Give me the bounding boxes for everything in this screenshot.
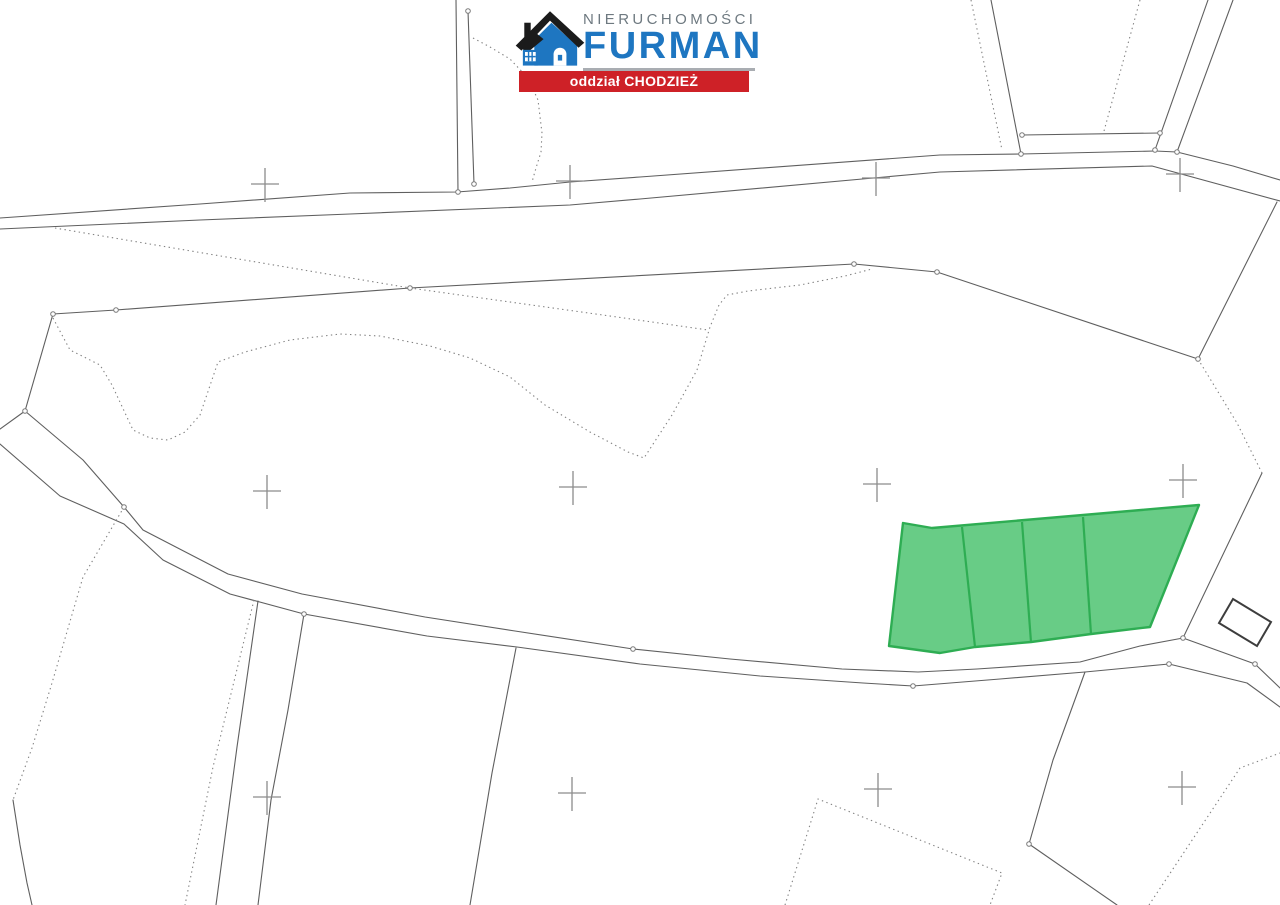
vertex-marker (408, 286, 413, 291)
east-dotted-link (1198, 359, 1262, 473)
vertex-marker (1167, 662, 1172, 667)
brand-text-block: NIERUCHOMOŚCI FURMAN (583, 11, 765, 71)
upward-road-middle-dotted (1104, 0, 1140, 131)
vertex-marker (1153, 148, 1158, 153)
vertex-marker (1020, 133, 1025, 138)
vertex-marker (1158, 131, 1163, 136)
building-outline (1219, 599, 1271, 646)
upward-road-left-edge (991, 0, 1021, 154)
survey-cross (253, 781, 281, 815)
vertex-marker (456, 190, 461, 195)
vertex-marker (23, 409, 28, 414)
cadastral-map-svg (0, 0, 1280, 905)
brand-name-main: FURMAN (583, 27, 765, 65)
branch-banner: oddział CHODZIEŻ (519, 71, 749, 92)
southeast-dotted (1149, 753, 1280, 905)
survey-cross (864, 773, 892, 807)
north-vertical-boundary-1 (456, 0, 458, 192)
road-north-top-line (0, 151, 1280, 218)
survey-cross (1166, 158, 1194, 192)
vertex-marker (1196, 357, 1201, 362)
upward-road-left-dotted (971, 0, 1002, 150)
survey-cross (1168, 771, 1196, 805)
south-boundary-d (1029, 672, 1117, 905)
road-north-bottom-line (0, 166, 1280, 229)
south-v-dotted (785, 799, 1002, 905)
vertex-marker (935, 270, 940, 275)
survey-cross (251, 168, 279, 202)
cadastral-map-page: NIERUCHOMOŚCI FURMAN oddział CHODZIEŻ (0, 0, 1280, 905)
vertex-marker (302, 612, 307, 617)
vertex-marker (472, 182, 477, 187)
vertex-marker (51, 312, 56, 317)
vertex-marker (1027, 842, 1032, 847)
vertex-marker (911, 684, 916, 689)
survey-cross (556, 165, 584, 199)
survey-cross (253, 475, 281, 509)
survey-cross (559, 471, 587, 505)
southwest-steep-dotted (13, 507, 124, 800)
vertex-marker (466, 9, 471, 14)
landuse-wavy-dotted (53, 269, 872, 458)
east-boundary-upper-link (1198, 202, 1277, 359)
highlighted-parcels (889, 505, 1199, 653)
vertex-marker (122, 505, 127, 510)
survey-cross (558, 777, 586, 811)
survey-cross (1169, 464, 1197, 498)
vertex-marker (1019, 152, 1024, 157)
southwest-corner-boundary (13, 800, 32, 905)
north-vertical-boundary-2 (468, 11, 474, 184)
survey-cross (863, 468, 891, 502)
south-boundary-a (216, 601, 258, 905)
south-boundary-b (258, 614, 304, 905)
big-parcel-north-boundary (53, 264, 1198, 359)
vertex-marker (1181, 636, 1186, 641)
house-icon (513, 7, 587, 67)
north-diagonal-dotted (55, 228, 708, 330)
upward-road-right-edge-outer (1177, 0, 1233, 152)
upward-road-connector (1022, 133, 1160, 135)
south-dotted-a (185, 600, 254, 905)
vertex-marker (1253, 662, 1258, 667)
vertex-marker (114, 308, 119, 313)
vertex-marker (631, 647, 636, 652)
agency-logo: NIERUCHOMOŚCI FURMAN oddział CHODZIEŻ (513, 5, 765, 99)
vertex-marker (1175, 150, 1180, 155)
south-boundary-c (470, 648, 516, 905)
vertex-marker (852, 262, 857, 267)
big-parcel-west-edge (25, 314, 53, 411)
upward-road-right-edge-inner (1155, 0, 1208, 150)
